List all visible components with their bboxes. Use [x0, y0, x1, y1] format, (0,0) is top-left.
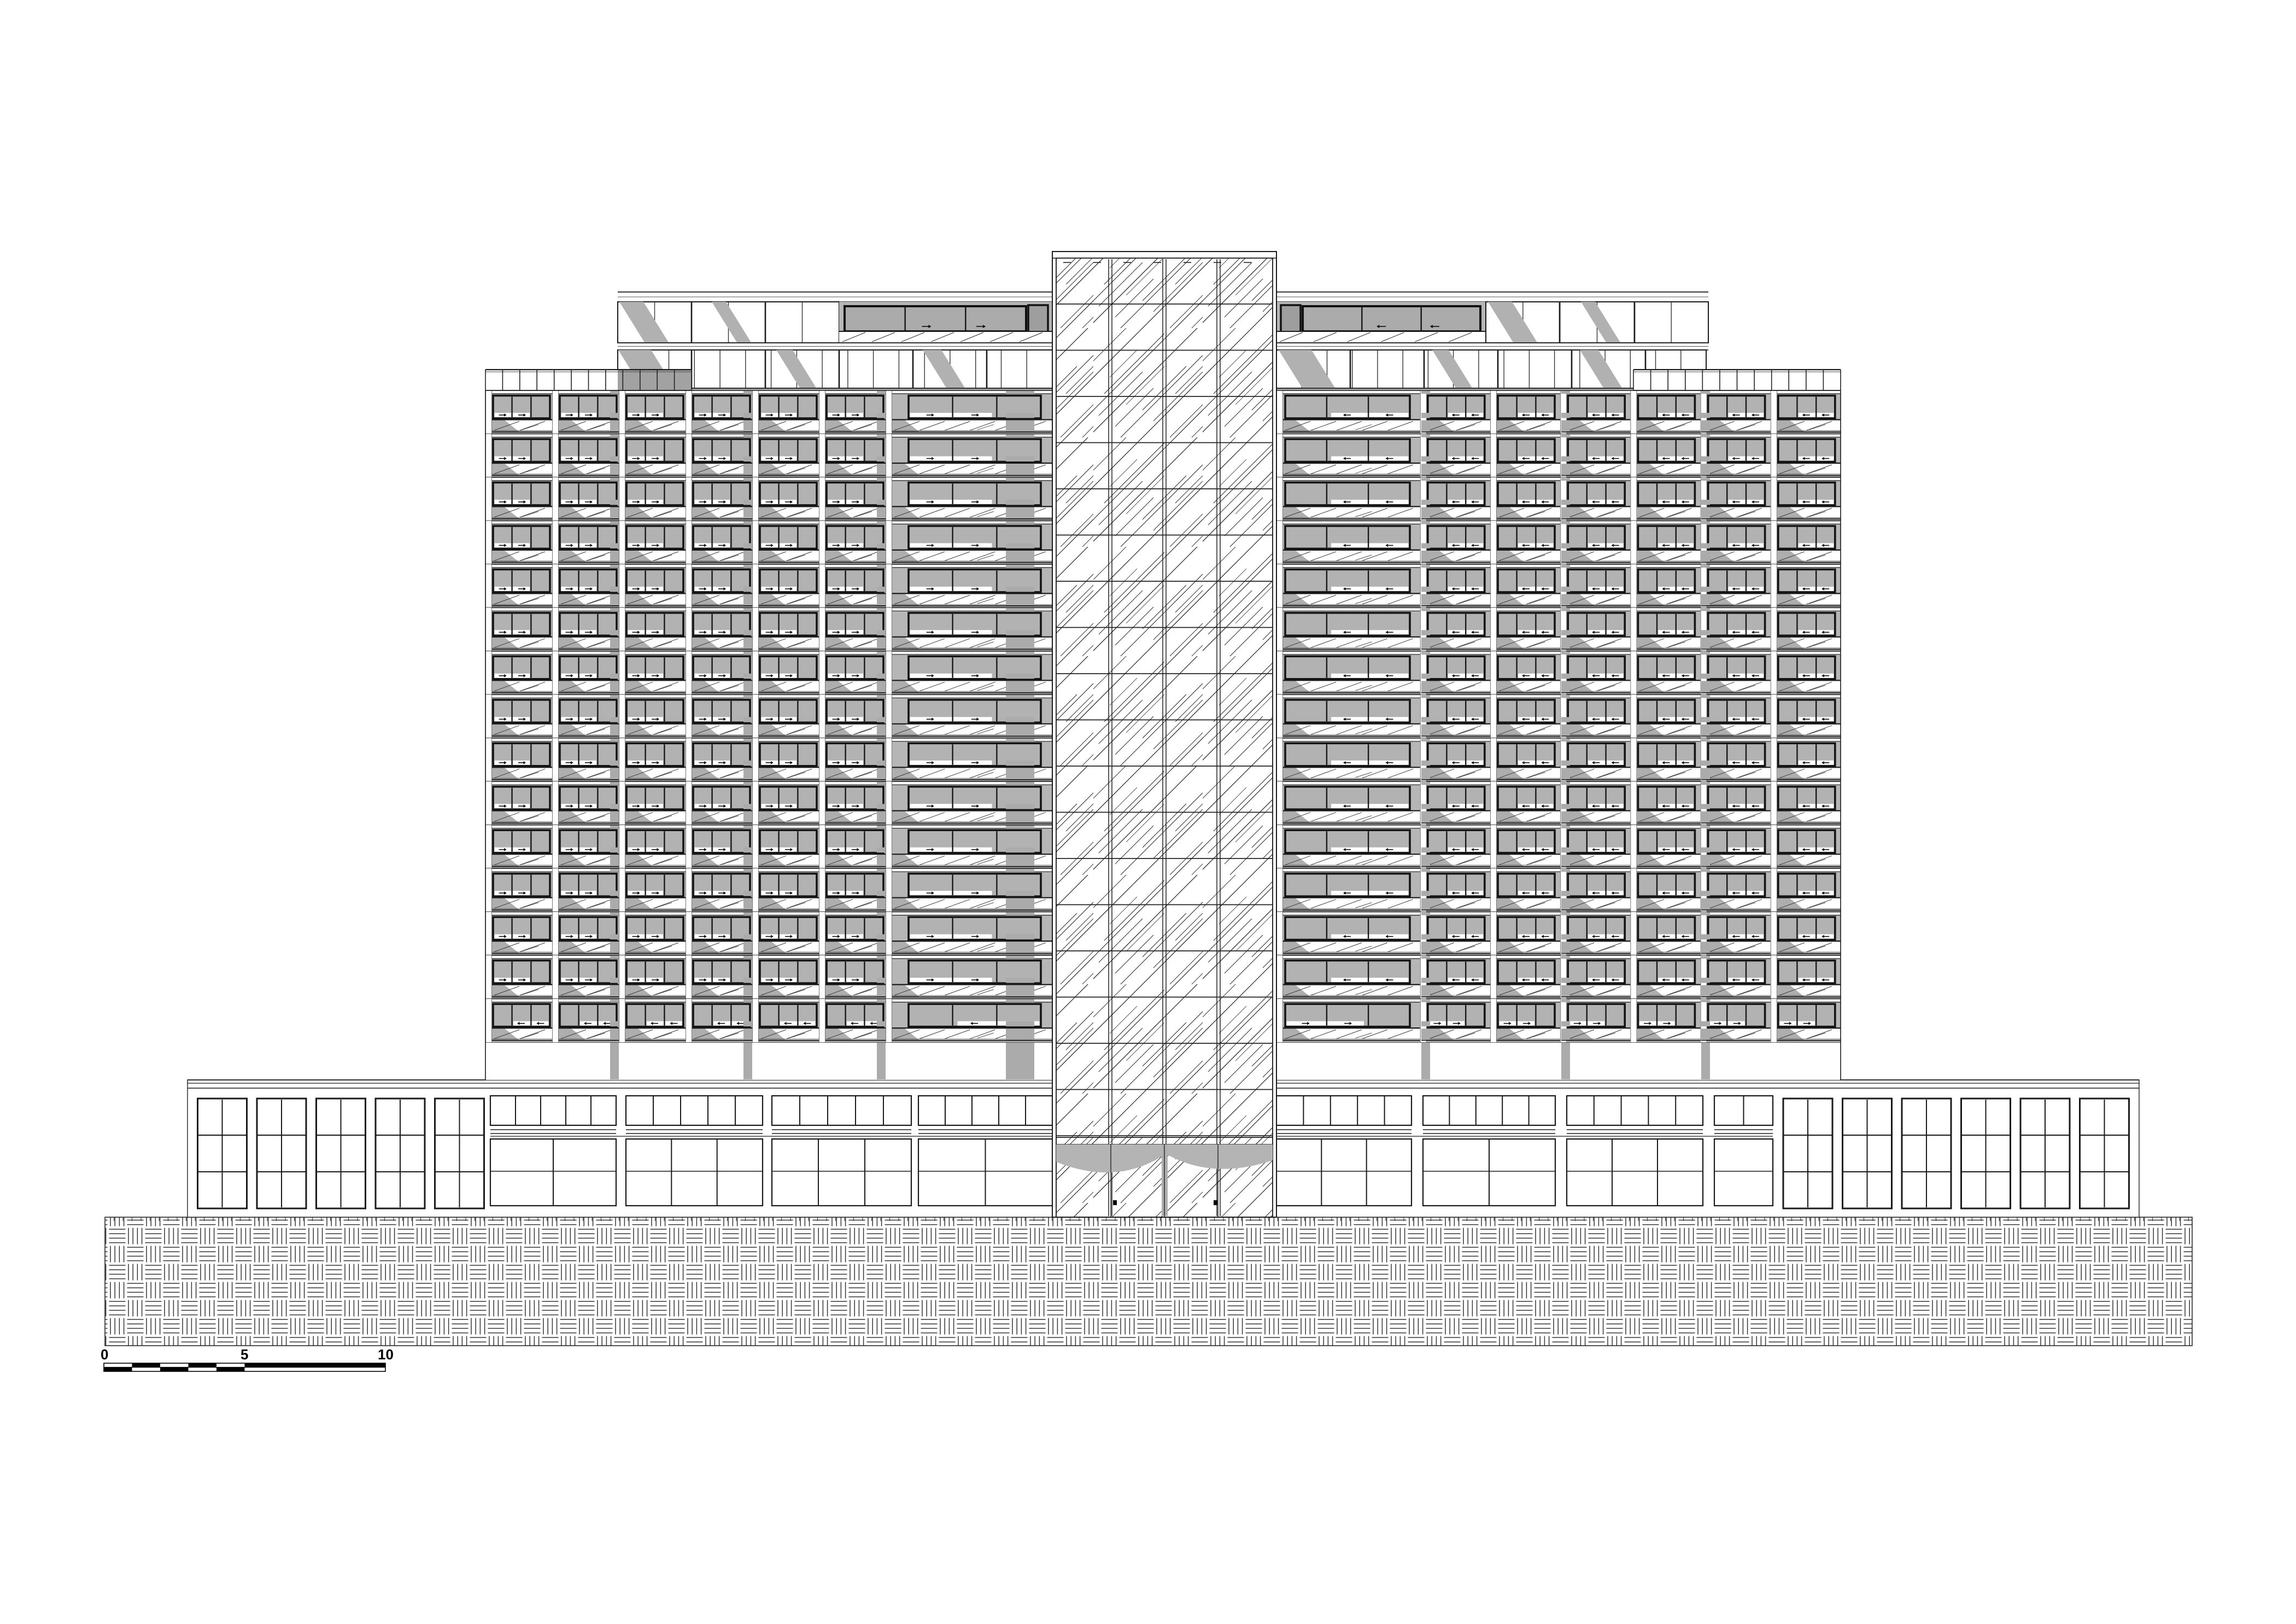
svg-text:0: 0: [101, 1346, 108, 1363]
svg-text:10: 10: [378, 1346, 394, 1363]
svg-text:5: 5: [241, 1346, 248, 1363]
